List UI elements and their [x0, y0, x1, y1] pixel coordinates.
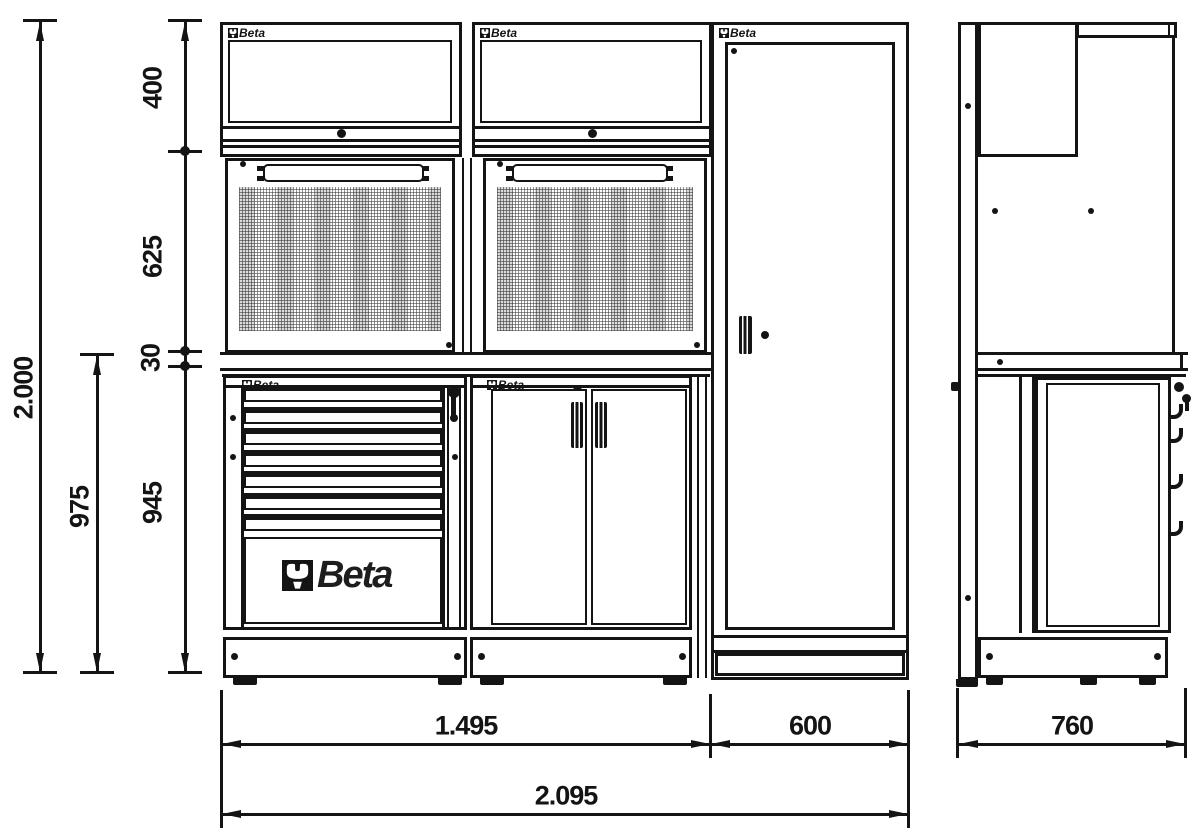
screw-dot — [986, 653, 993, 660]
dim-arrow — [222, 810, 241, 818]
screw-dot — [452, 454, 458, 460]
dim-chain-dot — [180, 146, 190, 156]
screw-dot — [731, 48, 737, 54]
lock-icon — [761, 331, 769, 339]
screw-dot — [679, 653, 686, 660]
screw-dot — [1088, 208, 1094, 214]
plinth-right — [470, 637, 692, 678]
rail-bracket — [422, 176, 429, 181]
worktop — [220, 352, 712, 371]
handle-rail-line — [447, 385, 449, 627]
screw-dot — [497, 161, 503, 167]
dim-line — [39, 22, 42, 672]
beta-logo-small: Beta — [719, 27, 756, 39]
beta-wrench-icon — [480, 28, 490, 38]
dim-arrow — [181, 22, 189, 41]
right-stile-line — [442, 385, 445, 627]
drawer-handle-profile — [1171, 428, 1183, 443]
wall-cabinet-left: Beta — [220, 22, 462, 157]
module-divider-line — [697, 375, 699, 678]
rail-line — [475, 145, 709, 148]
dim-arrow — [36, 653, 44, 672]
screw-dot — [1154, 653, 1161, 660]
beta-logo-small: Beta — [480, 27, 517, 39]
beta-logo-text: Beta — [317, 560, 391, 591]
dim-line — [222, 813, 909, 816]
dim-arrow — [181, 653, 189, 672]
beta-wrench-icon — [228, 28, 238, 38]
rail-line — [223, 139, 459, 142]
dim-chain-dot — [180, 361, 190, 371]
dim-label-back-panel: 625 — [138, 236, 169, 278]
perforated-panel-left — [225, 158, 455, 353]
side-front-edge-line — [1172, 36, 1175, 358]
top-rail-end-cap — [1168, 24, 1170, 36]
dim-label-locker-width: 600 — [789, 711, 831, 742]
side-top-rail — [1076, 22, 1177, 38]
dim-arrow — [691, 740, 710, 748]
dim-label-worktop-level: 975 — [65, 486, 96, 528]
wall-cabinet-right-shutter — [480, 40, 702, 123]
rail-bracket — [666, 166, 673, 171]
technical-drawing-canvas: Beta Beta — [0, 0, 1200, 833]
screw-dot — [965, 595, 971, 601]
beta-logo-text: Beta — [491, 27, 517, 39]
rail-bracket — [257, 176, 264, 181]
foot — [956, 679, 978, 687]
dim-label-overall-height: 2.000 — [9, 357, 40, 420]
dim-line — [958, 743, 1185, 746]
locker-plinth — [715, 653, 905, 676]
drawer-6 — [244, 493, 442, 510]
side-handle-ball — [450, 414, 458, 422]
handle-rail-line — [459, 385, 461, 627]
dim-label-cabinets-width: 1.495 — [435, 711, 498, 742]
dim-label-base-unit: 945 — [138, 482, 169, 524]
drawer-7 — [244, 514, 442, 531]
two-door-cabinet: Beta — [470, 375, 692, 630]
dim-arrow — [889, 740, 908, 748]
rail-bracket — [422, 166, 429, 171]
dim-extension-line — [907, 690, 910, 828]
screw-dot — [230, 454, 236, 460]
drawer-handle-profile — [1171, 474, 1183, 489]
screw-dot — [231, 653, 238, 660]
screw-dot — [478, 653, 485, 660]
screw-dot — [992, 208, 998, 214]
screw-dot — [454, 653, 461, 660]
beta-wrench-icon — [282, 560, 313, 591]
locker-handle — [739, 316, 752, 354]
drawer-handle-profile — [1171, 404, 1183, 419]
key-icon — [1185, 401, 1189, 411]
screw-dot — [446, 342, 452, 348]
side-worktop-profile — [978, 352, 1188, 371]
drawer-2 — [244, 407, 442, 424]
dim-arrow — [93, 653, 101, 672]
side-plinth-profile — [978, 637, 1168, 678]
lock-icon — [337, 129, 346, 138]
dim-arrow — [93, 356, 101, 375]
drawer-4 — [244, 450, 442, 467]
worktop-end-cap — [1180, 352, 1183, 371]
perforated-panel-right — [483, 158, 707, 353]
foot — [438, 677, 462, 685]
side-drawer-body-profile — [1046, 383, 1160, 627]
dim-line — [222, 743, 709, 746]
dim-arrow — [222, 740, 241, 748]
tall-locker: Beta — [711, 22, 909, 680]
screw-dot — [997, 359, 1003, 365]
drawer-3 — [244, 428, 442, 445]
side-wall-cabinet-profile — [978, 22, 1078, 157]
rail-line — [475, 139, 709, 142]
panel-divider-line — [462, 158, 464, 353]
rail-bracket — [666, 176, 673, 181]
rail-line — [223, 145, 459, 148]
side-upright-panel — [958, 22, 978, 680]
tool-rail-left — [263, 164, 424, 182]
screw-dot — [965, 103, 971, 109]
beta-logo-text: Beta — [730, 27, 756, 39]
screw-dot — [694, 342, 700, 348]
lock-icon — [1174, 382, 1184, 392]
wall-fixing-knob — [951, 382, 959, 391]
perforation-grid — [497, 187, 693, 331]
dim-line — [96, 356, 99, 672]
tool-rail-right — [512, 164, 668, 182]
dim-label-worktop-thickness: 30 — [136, 344, 167, 372]
foot — [1080, 677, 1097, 685]
foot — [233, 677, 257, 685]
door-handle-left — [571, 402, 583, 448]
drawer-5 — [244, 471, 442, 488]
screw-dot — [230, 415, 236, 421]
foot — [663, 677, 687, 685]
beta-logo-large: Beta — [282, 560, 391, 591]
dim-label-overall-width: 2.095 — [535, 781, 598, 812]
beta-logo-small: Beta — [228, 27, 265, 39]
dim-arrow — [889, 810, 908, 818]
base-line — [714, 635, 906, 638]
screw-dot — [240, 161, 246, 167]
wall-cabinet-left-shutter — [228, 40, 452, 123]
door-handle-right — [595, 402, 607, 448]
foot — [1139, 677, 1156, 685]
foot — [480, 677, 504, 685]
plinth-left — [223, 637, 467, 678]
panel-divider-line — [470, 158, 472, 353]
dim-label-wall-unit: 400 — [138, 67, 169, 109]
foot — [986, 677, 1003, 685]
dim-arrow — [711, 740, 730, 748]
rail-bracket — [506, 166, 513, 171]
dim-line — [711, 743, 907, 746]
drawer-handle-profile — [1171, 521, 1183, 536]
drawer-cabinet-bottom-panel: Beta — [244, 537, 442, 624]
dim-extension-line — [709, 694, 712, 758]
dim-arrow — [36, 22, 44, 41]
module-divider-line — [705, 375, 707, 678]
dim-label-depth: 760 — [1051, 711, 1093, 742]
beta-wrench-icon — [719, 28, 729, 38]
perforation-grid — [239, 187, 441, 331]
wall-cabinet-right: Beta — [472, 22, 712, 157]
rail-bracket — [506, 176, 513, 181]
side-partition-line — [1019, 377, 1022, 633]
dim-extension-line — [220, 690, 223, 828]
rail-bracket — [257, 166, 264, 171]
dim-arrow — [1166, 740, 1185, 748]
dim-chain-dot — [180, 346, 190, 356]
lock-icon — [588, 129, 597, 138]
drawer-1 — [244, 385, 442, 402]
drawer-cabinet: Beta Beta — [223, 375, 467, 630]
dim-arrow — [959, 740, 978, 748]
beta-logo-text: Beta — [239, 27, 265, 39]
